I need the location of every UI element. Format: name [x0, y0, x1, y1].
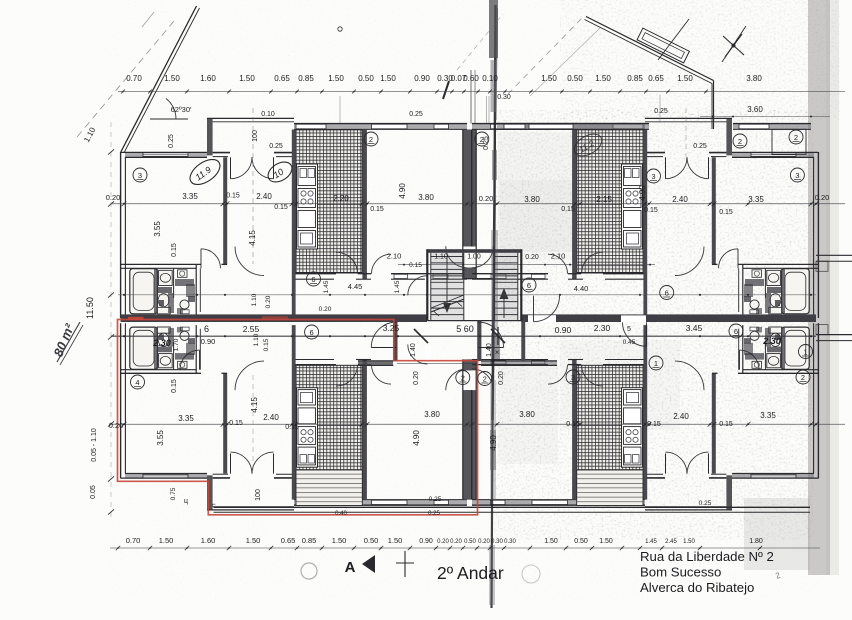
svg-text:3.25: 3.25 — [383, 323, 400, 333]
svg-text:3.60: 3.60 — [747, 105, 763, 114]
svg-text:0.15: 0.15 — [285, 424, 299, 431]
svg-text:3.80: 3.80 — [524, 195, 540, 204]
svg-text:3: 3 — [571, 373, 575, 382]
svg-text:4.90: 4.90 — [412, 430, 421, 446]
svg-text:2: 2 — [483, 374, 487, 383]
svg-text:1.50: 1.50 — [677, 74, 693, 83]
svg-text:0.15: 0.15 — [263, 338, 270, 351]
svg-text:⌐: ⌐ — [212, 502, 216, 508]
svg-text:0.50: 0.50 — [358, 74, 374, 83]
svg-text:0.90: 0.90 — [419, 538, 433, 545]
svg-text:0.20: 0.20 — [478, 539, 490, 545]
svg-text:0.15: 0.15 — [370, 206, 384, 213]
svg-text:0.85: 0.85 — [302, 536, 317, 545]
svg-text:1.45: 1.45 — [323, 280, 330, 293]
svg-text:0.75: 0.75 — [170, 487, 177, 500]
svg-text:3.35: 3.35 — [748, 195, 764, 204]
svg-text:0.15: 0.15 — [644, 207, 658, 214]
svg-text:3.35: 3.35 — [760, 411, 776, 420]
svg-text:1.45: 1.45 — [645, 539, 657, 545]
svg-text:0.70: 0.70 — [126, 536, 141, 545]
svg-text:3.80: 3.80 — [418, 193, 434, 202]
svg-text:0.25: 0.25 — [409, 111, 423, 118]
svg-text:0.20: 0.20 — [479, 194, 494, 203]
svg-text:6: 6 — [311, 275, 315, 284]
svg-text:0.15: 0.15 — [719, 421, 733, 428]
svg-text:6: 6 — [665, 288, 669, 297]
svg-text:1.50: 1.50 — [159, 536, 174, 545]
svg-text:1.45: 1.45 — [394, 280, 401, 293]
svg-text:3.80: 3.80 — [424, 410, 440, 419]
svg-text:0.45: 0.45 — [623, 339, 636, 346]
svg-text:4.90: 4.90 — [398, 183, 407, 199]
svg-text:1.50: 1.50 — [541, 74, 557, 83]
svg-text:0.25: 0.25 — [699, 500, 712, 507]
svg-text:0.65: 0.65 — [274, 74, 290, 83]
svg-text:0.20: 0.20 — [319, 306, 332, 313]
svg-text:6: 6 — [204, 324, 209, 334]
svg-text:2.40: 2.40 — [256, 192, 272, 201]
svg-text:0.85: 0.85 — [298, 74, 314, 83]
svg-text:2: 2 — [369, 135, 373, 144]
svg-text:0.50: 0.50 — [364, 536, 379, 545]
svg-text:2.45: 2.45 — [665, 539, 677, 545]
svg-text:ц: ц — [184, 498, 188, 505]
svg-text:0.20: 0.20 — [815, 193, 830, 202]
svg-text:2.15: 2.15 — [596, 195, 612, 204]
svg-text:1.70: 1.70 — [173, 338, 180, 351]
svg-text:0.40: 0.40 — [335, 511, 347, 517]
svg-text:0.90: 0.90 — [201, 337, 216, 346]
svg-text:3.80: 3.80 — [519, 410, 535, 419]
svg-text:5 60: 5 60 — [456, 324, 474, 334]
svg-text:0.25: 0.25 — [693, 143, 707, 150]
svg-text:0.25: 0.25 — [269, 143, 283, 150]
svg-text:0.20: 0.20 — [106, 193, 121, 202]
svg-text:0.10: 0.10 — [261, 111, 275, 118]
svg-text:0.10: 0.10 — [482, 74, 498, 83]
svg-text:1.00: 1.00 — [467, 254, 481, 261]
svg-text:1.60: 1.60 — [200, 74, 216, 83]
svg-text:1.50: 1.50 — [380, 74, 396, 83]
svg-text:0.15: 0.15 — [171, 379, 178, 393]
svg-text:0.50: 0.50 — [464, 539, 476, 545]
svg-text:2º Andar: 2º Andar — [437, 563, 504, 583]
svg-text:0.85: 0.85 — [627, 74, 643, 83]
svg-text:6: 6 — [310, 328, 314, 337]
svg-text:2.40: 2.40 — [672, 195, 688, 204]
svg-text:62º30′: 62º30′ — [171, 105, 192, 114]
svg-text:0.50: 0.50 — [567, 74, 583, 83]
svg-text:2.40: 2.40 — [673, 412, 689, 421]
svg-text:3.35: 3.35 — [178, 414, 194, 423]
svg-text:1.50: 1.50 — [332, 536, 347, 545]
svg-text:4.45: 4.45 — [348, 282, 363, 291]
svg-text:0.15: 0.15 — [274, 204, 288, 211]
svg-text:11.50: 11.50 — [85, 297, 95, 319]
svg-text:0.65: 0.65 — [281, 536, 296, 545]
svg-text:2.30: 2.30 — [762, 336, 781, 346]
svg-text:1.50: 1.50 — [683, 539, 695, 545]
svg-text:0.25: 0.25 — [654, 108, 668, 115]
svg-text:0.60: 0.60 — [463, 74, 479, 83]
svg-text:1.40: 1.40 — [410, 343, 417, 357]
svg-text:0.15: 0.15 — [566, 421, 580, 428]
svg-text:3: 3 — [138, 171, 142, 180]
svg-text:4.15: 4.15 — [250, 397, 259, 413]
svg-text:3: 3 — [795, 171, 799, 180]
svg-text:0.25: 0.25 — [428, 511, 440, 517]
svg-text:2.30: 2.30 — [152, 338, 171, 348]
svg-text:100: 100 — [255, 489, 262, 501]
svg-text:1.50: 1.50 — [328, 74, 344, 83]
svg-text:A: A — [345, 559, 356, 576]
svg-text:0.30: 0.30 — [497, 94, 511, 101]
svg-text:3.45: 3.45 — [686, 323, 703, 333]
svg-text:1: 1 — [654, 359, 658, 368]
svg-text:4.40: 4.40 — [574, 284, 589, 293]
svg-text:2.30: 2.30 — [594, 323, 611, 333]
svg-text:1.50: 1.50 — [595, 74, 611, 83]
svg-text:1.60: 1.60 — [201, 536, 216, 545]
svg-text:1.40: 1.40 — [486, 343, 493, 357]
svg-text:2.20: 2.20 — [333, 194, 349, 203]
svg-text:4.90: 4.90 — [489, 435, 498, 451]
svg-text:Rua da Liberdade Nº 2: Rua da Liberdade Nº 2 — [640, 549, 774, 564]
svg-text:0.65: 0.65 — [648, 74, 664, 83]
svg-text:2.40: 2.40 — [263, 413, 279, 422]
svg-text:1.10: 1.10 — [251, 293, 258, 306]
svg-text:4.90: 4.90 — [638, 185, 647, 201]
svg-text:0.70: 0.70 — [126, 74, 142, 83]
svg-text:2.55: 2.55 — [243, 324, 260, 334]
svg-text:4.15: 4.15 — [248, 230, 257, 246]
svg-text:0.20: 0.20 — [525, 254, 539, 261]
svg-text:3.35: 3.35 — [182, 192, 198, 201]
svg-text:0.05 - 1.10: 0.05 - 1.10 — [91, 428, 98, 462]
svg-text:100: 100 — [252, 130, 259, 142]
svg-text:1.50: 1.50 — [164, 74, 180, 83]
svg-text:1.80: 1.80 — [749, 538, 763, 545]
svg-text:0.90: 0.90 — [555, 325, 572, 335]
svg-text:0.25: 0.25 — [429, 496, 442, 503]
svg-text:0.25: 0.25 — [168, 134, 175, 148]
svg-text:0.15: 0.15 — [719, 209, 733, 216]
svg-text:0.15: 0.15 — [229, 420, 243, 427]
svg-text:3.80: 3.80 — [746, 74, 762, 83]
svg-text:1.50: 1.50 — [544, 538, 558, 545]
svg-text:1.50: 1.50 — [246, 536, 261, 545]
svg-text:0.20: 0.20 — [109, 421, 124, 430]
svg-text:3: 3 — [651, 172, 655, 181]
svg-text:0.50: 0.50 — [574, 538, 588, 545]
svg-text:2: 2 — [801, 373, 805, 382]
svg-text:3.55: 3.55 — [156, 430, 165, 446]
svg-text:0.90: 0.90 — [414, 74, 430, 83]
svg-text:0.15: 0.15 — [171, 243, 178, 257]
svg-text:0.20: 0.20 — [413, 371, 420, 385]
svg-text:Bom Sucesso: Bom Sucesso — [640, 565, 721, 580]
svg-text:0.15: 0.15 — [647, 421, 661, 428]
svg-text:2.10: 2.10 — [551, 252, 566, 261]
svg-text:1.50: 1.50 — [388, 536, 403, 545]
svg-text:4: 4 — [135, 378, 139, 387]
svg-text:1.10: 1.10 — [434, 254, 448, 261]
svg-text:2: 2 — [461, 373, 465, 382]
svg-text:2.10: 2.10 — [387, 252, 402, 261]
svg-text:0.20: 0.20 — [498, 371, 505, 385]
svg-text:1.50: 1.50 — [239, 74, 255, 83]
svg-text:0.05: 0.05 — [90, 485, 97, 499]
svg-text:2: 2 — [738, 137, 742, 146]
svg-text:0.20: 0.20 — [437, 539, 449, 545]
svg-text:0.20: 0.20 — [265, 295, 272, 308]
svg-text:3.55: 3.55 — [153, 221, 162, 237]
svg-text:0.15: 0.15 — [409, 262, 422, 269]
svg-text:5: 5 — [627, 326, 631, 333]
svg-text:1.10: 1.10 — [253, 333, 260, 346]
svg-text:2: 2 — [480, 135, 484, 144]
svg-text:0.30: 0.30 — [491, 539, 503, 545]
svg-text:0.20: 0.20 — [450, 539, 462, 545]
svg-text:1.50: 1.50 — [599, 538, 613, 545]
svg-text:0.15: 0.15 — [226, 193, 240, 200]
svg-text:×: × — [495, 348, 500, 357]
svg-text:6: 6 — [734, 327, 738, 336]
svg-text:2: 2 — [794, 133, 798, 142]
svg-text:1: 1 — [803, 347, 807, 356]
svg-text:0.15: 0.15 — [561, 206, 575, 213]
svg-text:6: 6 — [527, 281, 531, 290]
svg-text:Alverca do Ribatejo: Alverca do Ribatejo — [640, 580, 754, 595]
svg-text:0.30: 0.30 — [504, 539, 516, 545]
